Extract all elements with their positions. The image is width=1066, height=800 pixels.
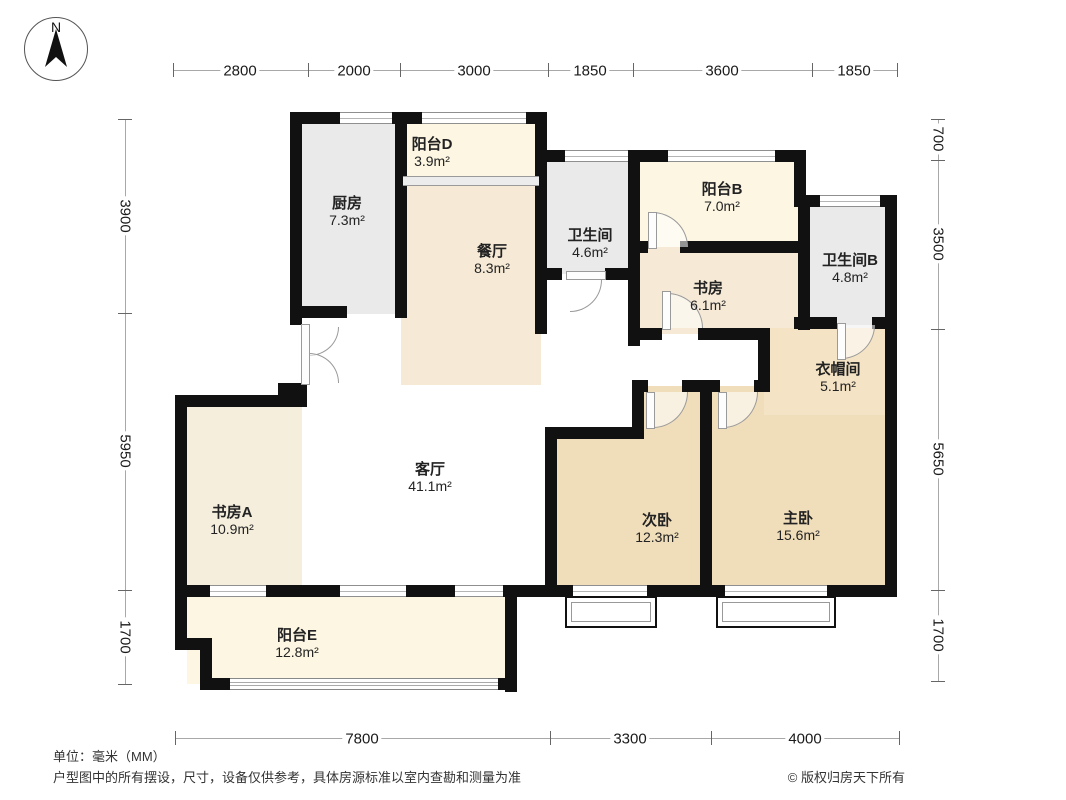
compass: N	[24, 17, 88, 81]
room-label-dining: 餐厅 8.3m²	[474, 244, 510, 276]
room-name: 卫生间B	[822, 253, 878, 269]
dimension-tick	[175, 731, 176, 745]
dimension-tick	[711, 731, 712, 745]
balcony-d-sliding-window	[403, 176, 539, 186]
dimension-tick	[400, 63, 401, 77]
dim-left-1700: 1700	[117, 617, 134, 656]
dimension-tick	[633, 63, 634, 77]
room-name: 餐厅	[474, 244, 510, 260]
room-name: 衣帽间	[815, 362, 860, 378]
dim-top-3600: 3600	[702, 63, 741, 80]
room-label-balcony-b: 阳台B 7.0m²	[702, 182, 743, 214]
dim-right-5650: 5650	[930, 439, 947, 478]
wall	[700, 386, 712, 597]
room-area: 6.1m²	[690, 297, 726, 313]
room-area: 12.8m²	[275, 644, 319, 660]
wall	[535, 268, 562, 280]
bathroom-b-door-leaf	[837, 323, 846, 360]
dim-top-2800: 2800	[220, 63, 259, 80]
balcony-b-door-leaf	[648, 212, 657, 249]
dim-top-3000: 3000	[454, 63, 493, 80]
room-label-study: 书房 6.1m²	[690, 281, 726, 313]
dimension-line-right	[938, 119, 939, 681]
room-label-second-bedroom: 次卧 12.3m²	[635, 513, 679, 545]
disclaimer-note: 户型图中的所有摆设，尺寸，设备仅供参考，具体房源标准以室内查勘和测量为准	[53, 767, 521, 786]
dimension-tick	[812, 63, 813, 77]
room-area: 3.9m²	[412, 153, 453, 169]
dim-bottom-7800: 7800	[342, 731, 381, 748]
room-label-bathroom: 卫生间 4.6m²	[567, 228, 612, 260]
room-balcony-e	[187, 591, 514, 684]
room-label-balcony-e: 阳台E 12.8m²	[275, 628, 319, 660]
wall	[680, 241, 806, 253]
room-area: 5.1m²	[815, 378, 860, 394]
wall	[505, 585, 517, 692]
room-label-bathroom-b: 卫生间B 4.8m²	[822, 253, 878, 285]
window	[340, 112, 392, 124]
dim-right-700: 700	[930, 123, 947, 154]
room-label-balcony-d: 阳台D 3.9m²	[412, 137, 453, 169]
window	[668, 150, 775, 162]
window	[340, 585, 406, 597]
dimension-tick	[548, 63, 549, 77]
dimension-tick	[118, 313, 132, 314]
wall	[628, 241, 648, 253]
dim-top-1850: 1850	[570, 63, 609, 80]
room-study-a	[181, 401, 302, 591]
dimension-tick	[308, 63, 309, 77]
window	[210, 585, 266, 597]
bay-window-master-bedroom	[716, 596, 836, 628]
room-name: 卫生间	[567, 228, 612, 244]
bathroom-door-arc	[570, 280, 602, 312]
room-label-master-bedroom: 主卧 15.6m²	[776, 511, 820, 543]
room-dining	[401, 182, 541, 385]
wall	[628, 328, 662, 340]
second-bedroom-door-leaf	[646, 392, 655, 429]
room-name: 阳台D	[412, 137, 453, 153]
floor-plan: N	[0, 0, 1066, 800]
room-area: 8.3m²	[474, 260, 510, 276]
room-name: 厨房	[329, 196, 365, 212]
room-area: 10.9m²	[210, 521, 254, 537]
room-name: 客厅	[408, 462, 452, 478]
wall	[885, 195, 897, 597]
dim-top-1850b: 1850	[834, 63, 873, 80]
room-area: 41.1m²	[408, 478, 452, 494]
double-door-bottom-arc	[309, 353, 339, 383]
window	[422, 112, 526, 124]
room-area: 7.0m²	[702, 198, 743, 214]
room-label-study-a: 书房A 10.9m²	[210, 505, 254, 537]
dim-left-3900: 3900	[117, 196, 134, 235]
dimension-tick	[931, 329, 945, 330]
window	[820, 195, 880, 207]
dimension-tick	[931, 681, 945, 682]
bay-window-second-bedroom	[565, 596, 657, 628]
room-name: 书房	[690, 281, 726, 297]
dim-bottom-3300: 3300	[610, 731, 649, 748]
room-name: 次卧	[635, 513, 679, 529]
window	[455, 585, 503, 597]
balcony-e-glazing	[230, 678, 498, 690]
room-area: 15.6m²	[776, 527, 820, 543]
wall	[200, 638, 212, 690]
room-area: 12.3m²	[635, 529, 679, 545]
dim-left-5950: 5950	[117, 431, 134, 470]
dimension-tick	[931, 119, 945, 120]
wall	[545, 427, 644, 439]
study-door-leaf	[662, 291, 671, 330]
wall	[545, 427, 557, 597]
dimension-tick	[118, 590, 132, 591]
room-name: 阳台B	[702, 182, 743, 198]
dim-bottom-4000: 4000	[785, 731, 824, 748]
wall	[754, 380, 770, 392]
room-area: 4.8m²	[822, 269, 878, 285]
room-label-kitchen: 厨房 7.3m²	[329, 196, 365, 228]
copyright-note: © 版权归房天下所有	[600, 767, 905, 786]
double-door-top-arc	[309, 327, 339, 356]
room-second-bedroom	[551, 433, 706, 591]
room-area: 4.6m²	[567, 244, 612, 260]
dimension-tick	[550, 731, 551, 745]
dim-right-1700: 1700	[930, 615, 947, 654]
wall	[395, 112, 407, 318]
room-label-cloakroom: 衣帽间 5.1m²	[815, 362, 860, 394]
dimension-tick	[118, 119, 132, 120]
dimension-tick	[118, 684, 132, 685]
dim-top-2000: 2000	[334, 63, 373, 80]
wall	[175, 395, 187, 650]
dimension-tick	[173, 63, 174, 77]
dimension-tick	[897, 63, 898, 77]
bathroom-door-leaf	[566, 271, 606, 280]
dimension-line-top	[173, 70, 897, 71]
master-bedroom-door-leaf	[718, 392, 727, 429]
room-label-living-room: 客厅 41.1m²	[408, 462, 452, 494]
north-arrow-icon	[24, 17, 88, 81]
window	[565, 150, 628, 162]
unit-note: 单位：毫米（MM）	[53, 746, 166, 765]
room-name: 主卧	[776, 511, 820, 527]
double-door-frame	[301, 324, 310, 385]
room-name: 书房A	[210, 505, 254, 521]
dim-right-3500: 3500	[930, 224, 947, 263]
wall	[278, 383, 307, 407]
wall	[798, 195, 810, 330]
dimension-tick	[931, 590, 945, 591]
wall	[290, 306, 347, 318]
wall	[290, 112, 302, 325]
room-name: 阳台E	[275, 628, 319, 644]
room-area: 7.3m²	[329, 212, 365, 228]
dimension-tick	[899, 731, 900, 745]
dimension-tick	[931, 160, 945, 161]
